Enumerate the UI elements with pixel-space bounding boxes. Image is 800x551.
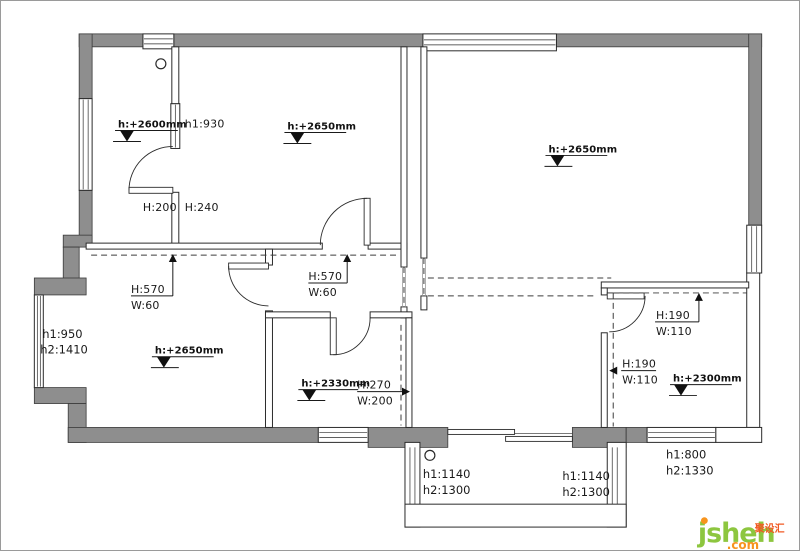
label-beam3-h: H:270 [357,379,391,392]
iwall-bedroom-top [601,282,748,288]
label-bedwindow-1: h1:800 [666,447,706,461]
label-balcony-right-1: h1:1140 [562,469,610,483]
sliding-door [448,429,573,441]
door-bathroom [330,318,370,355]
iwall-bath-top-a [265,312,330,318]
label-balcony-left-2: h2:1300 [423,483,471,497]
label-beam5-w: W:110 [622,374,658,387]
brand-suffix-text: .com [727,538,759,550]
thin-exterior-walls [716,273,762,442]
elevation-bedroom: h:+2300mm [669,374,742,396]
wall-left-1 [79,34,92,99]
drain-symbol-room1 [156,59,166,69]
wall-left-step-b [63,247,79,280]
elevation-living: h:+2650mm [151,346,224,368]
bay-window-cap-bottom [34,388,86,404]
wall-bottom-1 [68,427,318,442]
label-beam3-w: W:200 [357,395,393,408]
label-bedwindow-2: h2:1330 [666,463,714,477]
dimension-leaders [131,254,703,395]
elevation-bedroom-text: h:+2300mm [673,374,742,385]
window-left [79,99,92,191]
elevation-room1-text: h:+2600mm [118,120,187,131]
iwall-bigroom-left-a [421,47,427,258]
balcony-wall-bottom [405,504,626,527]
elevation-bigroom: h:+2650mm [544,144,617,166]
door-room2 [320,198,370,245]
floor-plan-canvas: h:+2600mm h:+2650mm h:+2650mm h:+2650mm … [1,1,799,550]
elevation-room2-text: h:+2650mm [287,122,356,133]
label-door-room1: H:200 [143,201,177,214]
wall-top-3 [556,34,761,47]
floor-plan-page: h:+2600mm h:+2650mm h:+2650mm h:+2650mm … [0,0,800,551]
label-baywindow-1: h1:950 [42,327,82,341]
bay-window-cap-top [34,278,86,295]
bay-window-glass [34,295,43,388]
label-beam4-w: W:110 [656,325,692,338]
label-balcony-right-2: h2:1300 [562,485,610,499]
window-top-small [143,34,174,49]
iwall-bedroom-left-a [601,288,607,295]
door-living [229,263,269,306]
iwall-bedroom-left-b [601,333,607,428]
window-top-large [423,34,557,51]
window-bottom-bedroom [647,427,716,442]
label-baywindow-2: h2:1410 [40,343,88,357]
elevation-living-text: h:+2650mm [155,346,224,357]
wall-bottom-4 [626,427,647,442]
window-right [747,225,762,273]
doors [129,146,645,354]
iwall-bigroom-left-b [421,296,427,310]
iwall-bath-right [406,318,412,428]
label-door-room2: H:240 [185,201,219,214]
brand-j-dot [701,517,708,524]
label-window-room1: h1:930 [185,118,225,131]
label-beam1-h: H:570 [131,283,165,296]
label-beam4-h: H:190 [656,309,690,322]
iwall-room2-right-a [401,47,407,267]
window-bottom-living [318,427,368,442]
iwall-corridor-top-a [86,243,322,249]
watermark-logo: jsheh .com 聚设汇 [697,517,785,550]
iwall-room1-right-a [172,47,179,104]
ceiling-dashed-lines [91,255,747,426]
wall-right [749,34,762,225]
elevation-bigroom-text: h:+2650mm [548,144,617,155]
iwall-living-right-b [265,311,272,428]
wall-corner-thin [716,427,762,442]
label-beam5-h: H:190 [622,358,656,371]
brand-chinese-text: 聚设汇 [754,522,785,535]
label-balcony-left-1: h1:1140 [423,467,471,481]
label-beam2-h: H:570 [308,270,342,283]
elevation-room2: h:+2650mm [283,122,356,144]
wall-top-2 [174,34,423,47]
label-beam1-w: W:60 [131,299,160,312]
iwall-bath-top-b [370,312,412,318]
door-room1 [129,146,173,193]
label-beam2-w: W:60 [308,286,337,299]
drain-symbol-balcony [425,450,435,460]
wall-right-thin [747,273,760,427]
